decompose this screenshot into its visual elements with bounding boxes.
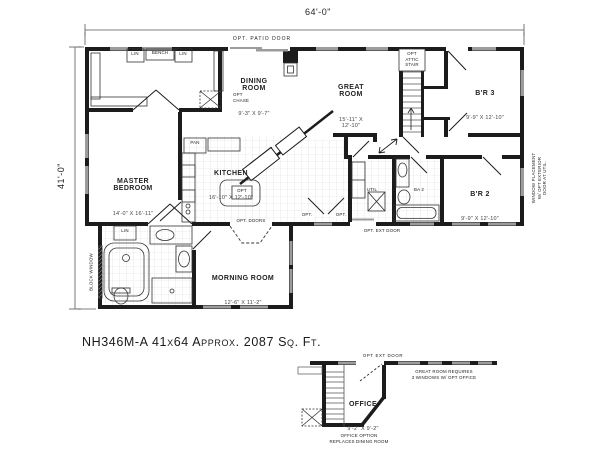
pantry-label: PAN [190, 141, 199, 146]
br3-dims: 9'-9" X 12'-10" [450, 115, 520, 121]
office-dims: 9'-2" X 9'-2" [338, 426, 388, 432]
br2-dims: 9'-9" X 12'-10" [445, 216, 515, 222]
room-label-great: GREAT ROOM 15'-11" X 12'-10" [330, 66, 372, 146]
office-great-room-note: GREAT ROOM REQUIRES 3 WINDOWS W/ OPT OFF… [412, 369, 477, 380]
room-label-util: UTIL [367, 188, 377, 193]
window-placement-note: WINDOW PLACEMENT W/ OPT EXTERIOR DOOR AT… [531, 148, 548, 208]
block-window [99, 246, 103, 298]
morning-dims: 12'-6" X 11'-2" [203, 300, 283, 306]
dining-dims: 9'-3" X 9'-7" [234, 111, 274, 117]
master-dims: 14'-0" X 16'-11" [109, 211, 157, 217]
morning-name: MORNING ROOM [203, 275, 283, 283]
opt-doors-bay [230, 226, 272, 243]
dining-name: DINING ROOM [234, 78, 274, 93]
master-name: MASTER BEDROOM [109, 178, 157, 193]
opt-ext-door-label: OPT. EXT DOOR [364, 229, 400, 234]
opt-patio-door-label: OPT. PATIO DOOR [233, 37, 291, 43]
island-opt-label: OPT [237, 189, 247, 194]
kitchen-dims: 16'-10" X 12'-10" [196, 195, 266, 201]
floor-plan-canvas: 64'-0" 41'-0" OPT. PATIO DOOR LIN BENCH … [0, 0, 600, 464]
room-label-master: MASTER BEDROOM 14'-0" X 16'-11" [109, 160, 157, 234]
br3-name: B'R 3 [450, 90, 520, 98]
room-label-br2: B'R 2 9'-9" X 12'-10" [445, 173, 515, 240]
office-option-caption: OFFICE OPTION REPLACES DINING ROOM [330, 433, 389, 444]
bath-lin-label: LIN [121, 229, 128, 234]
opt-attic-stair-label: OPT ATTIC STAIR [400, 51, 424, 68]
opt-chase-label: OPT CHASE [233, 92, 249, 103]
opt-label-left: OPT. [301, 213, 314, 218]
room-label-ba2: BA 2 [414, 188, 424, 193]
office-name: OFFICE [338, 401, 388, 409]
opt-label-right: OPT. [335, 213, 348, 218]
room-label-morning: MORNING ROOM 12'-6" X 11'-2" [203, 257, 283, 324]
office-opt-ext-door-label: OPT EXT DOOR [363, 354, 403, 359]
room-label-br3: B'R 3 9'-9" X 12'-10" [450, 72, 520, 139]
plan-title: NH346M-A 41x64 Approx. 2087 Sq. Ft. [82, 336, 321, 350]
room-label-kitchen: KITCHEN 16'-10" X 12'-10" [196, 152, 266, 219]
opt-doors-label: OPT. DOORS [235, 219, 266, 224]
block-window-label: BLOCK WINDOW [90, 253, 95, 291]
bench-label: BENCH [152, 51, 168, 56]
lin-right-label: LIN [179, 52, 186, 57]
lin-left-label: LIN [131, 52, 138, 57]
kitchen-name: KITCHEN [196, 170, 266, 178]
great-dims: 15'-11" X 12'-10" [330, 117, 372, 129]
br2-name: B'R 2 [445, 191, 515, 199]
great-name: GREAT ROOM [330, 84, 372, 99]
top-dimension: 64'-0" [305, 8, 331, 18]
hall-arrow [379, 139, 397, 153]
left-dimension: 41'-0" [57, 163, 67, 189]
